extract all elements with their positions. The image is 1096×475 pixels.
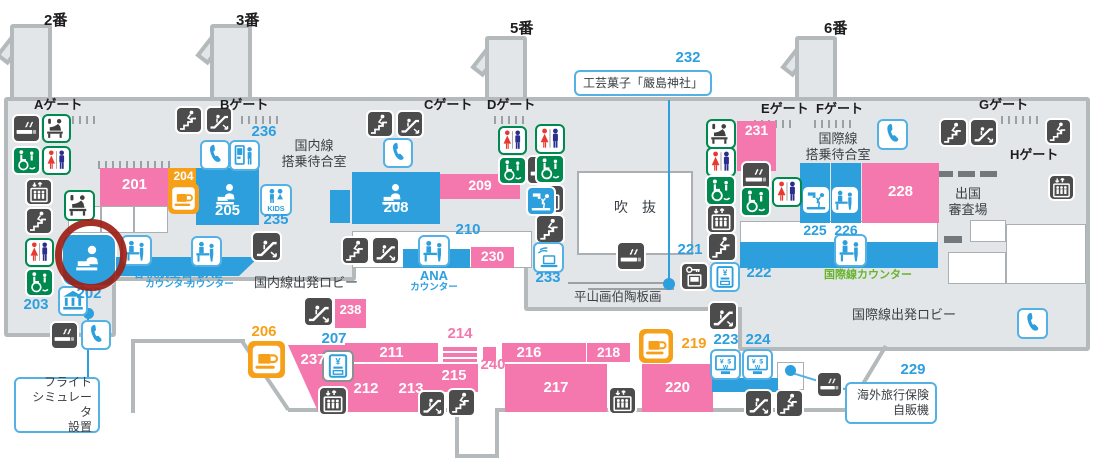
num-label: 225 [798, 222, 832, 239]
smoking-icon[interactable] [12, 114, 41, 143]
svg-text:W: W [755, 365, 761, 371]
accessible-toilet-icon[interactable] [740, 186, 771, 217]
coffee-shop-icon[interactable] [639, 329, 673, 363]
escalator-icon[interactable] [744, 389, 773, 418]
elevator-icon[interactable] [25, 178, 53, 206]
elevator-icon[interactable] [608, 386, 637, 415]
gate-door-marks [494, 116, 524, 124]
booth-dash [958, 171, 975, 177]
escalator-icon[interactable] [251, 231, 282, 262]
stairs-icon[interactable] [25, 207, 53, 235]
elevator-icon[interactable] [1048, 174, 1075, 201]
white-room [1006, 224, 1086, 284]
connector-dot [785, 365, 796, 376]
smoking-icon[interactable] [50, 321, 79, 350]
stairs-icon[interactable] [1045, 118, 1072, 145]
bridge-label: 5番 [510, 20, 533, 38]
stairs-icon[interactable] [535, 214, 565, 244]
num-label: 206 [240, 323, 288, 341]
counter-label: カウンター [184, 279, 236, 290]
num-label: 210 [446, 221, 490, 239]
zone-num: 216 [502, 344, 556, 362]
zone-num: 205 [196, 202, 259, 220]
counter-label: 国際線カウンター [804, 269, 932, 282]
coffee-shop-icon[interactable] [248, 341, 285, 378]
zone-208b[interactable] [330, 190, 350, 223]
stairs-icon[interactable] [366, 110, 394, 138]
booth-dash [980, 171, 997, 177]
toilet-icon[interactable] [706, 147, 736, 177]
toilet-icon[interactable] [535, 124, 565, 154]
zone-num: 237 [288, 351, 338, 369]
phone-icon[interactable] [200, 140, 230, 170]
area-label: 出国 審査場 [936, 186, 1000, 217]
phone-icon[interactable] [383, 138, 413, 168]
stairs-icon[interactable] [175, 106, 203, 134]
stairs-icon[interactable] [775, 389, 804, 418]
zone-num: 238 [335, 302, 366, 318]
white-room [948, 252, 1006, 284]
area-label: 国際線出発ロビー [852, 307, 956, 323]
area-label: 国内線 搭乗待合室 [260, 138, 368, 169]
escalator-icon[interactable] [371, 236, 400, 265]
zone-num: 204 [168, 169, 199, 183]
counter-label: カウンター [402, 282, 466, 293]
highlight-circle-202 [55, 219, 127, 291]
zone-num: 209 [440, 177, 520, 194]
booth-dash [944, 236, 962, 243]
gate-label: Hゲート [1010, 147, 1058, 163]
zone-num: 208 [352, 199, 440, 217]
wall-segment [495, 408, 499, 458]
airline-counter-icon[interactable] [834, 234, 867, 267]
elevator-icon[interactable] [706, 204, 736, 234]
currency-exchange-icon[interactable]: ¥$W [710, 349, 741, 380]
stairs-icon[interactable] [447, 388, 476, 417]
white-room [134, 206, 168, 233]
elevator-icon[interactable] [318, 386, 348, 416]
num-label: 221 [668, 241, 712, 259]
vending-machine-icon[interactable] [229, 140, 260, 171]
airline-counter-icon[interactable] [191, 236, 222, 267]
coin-locker-icon[interactable] [680, 262, 709, 291]
num-label: 232 [666, 49, 710, 67]
num-label: 214 [436, 325, 484, 343]
num-label: 226 [829, 222, 863, 239]
stairs-icon[interactable] [939, 118, 968, 147]
zone-num: 213 [389, 380, 433, 398]
gate-label: Bゲート [220, 97, 268, 113]
smoking-icon[interactable] [616, 241, 646, 271]
num-label: 222 [737, 264, 781, 282]
num-label: 233 [526, 269, 570, 287]
airport-floor-map: KIDS¥¥¥$W¥$W2番3番5番6番AゲートBゲートCゲートDゲートEゲート… [0, 0, 1096, 475]
zone-num: 217 [505, 379, 607, 397]
svg-text:W: W [723, 365, 729, 371]
accessible-toilet-icon[interactable] [535, 154, 565, 184]
zone-num: 231 [737, 122, 776, 139]
callout-travel-insurance: 海外旅行保険 自販機 [845, 382, 937, 424]
zone-num: 212 [345, 380, 387, 398]
gate-label: Dゲート [487, 97, 535, 113]
accessible-toilet-icon[interactable] [705, 175, 736, 206]
phone-icon[interactable] [81, 320, 111, 350]
currency-exchange-icon[interactable]: ¥$W [742, 349, 773, 380]
info-counter-icon[interactable] [832, 187, 858, 213]
gate-label: Gゲート [979, 97, 1028, 113]
gate-door-marks [1001, 116, 1041, 124]
zone-num: 230 [471, 248, 514, 265]
phone-icon[interactable] [1017, 308, 1048, 339]
bridge-label: 3番 [236, 12, 259, 30]
num-label: 235 [254, 211, 298, 229]
coffee-shop-icon[interactable] [168, 183, 199, 214]
area-label: 国内線出発ロビー [254, 275, 358, 291]
num-label: 203 [14, 296, 58, 314]
baby-room-icon[interactable] [706, 119, 736, 149]
escalator-icon[interactable] [969, 118, 998, 147]
gate-label: Cゲート [424, 97, 472, 113]
gate-door-marks [814, 120, 854, 128]
accessible-toilet-icon[interactable] [12, 146, 41, 175]
water-fountain-icon[interactable] [803, 187, 829, 213]
wall-segment [131, 339, 135, 413]
num-label: 236 [242, 123, 286, 141]
toilet-icon[interactable] [42, 146, 71, 175]
wall-segment [131, 339, 245, 343]
zone-num: 215 [430, 367, 478, 385]
baby-room-icon[interactable] [64, 190, 95, 221]
bridge-label: 6番 [824, 20, 847, 38]
area-label: 吹 抜 [577, 199, 693, 216]
callout-craft-sweets: 工芸菓子「嚴島神社」 [574, 70, 712, 96]
escalator-icon[interactable] [303, 296, 334, 327]
airline-counter-icon[interactable] [418, 235, 450, 267]
escalator-icon[interactable] [708, 301, 738, 331]
gate-label: Aゲート [34, 97, 82, 113]
atm-icon[interactable]: ¥ [710, 262, 740, 292]
area-label: 平山画伯陶板画 [574, 290, 662, 305]
smoking-icon[interactable] [816, 371, 843, 398]
callout-flight-simulator: フライト シミュレータ 設置 [14, 377, 100, 433]
accessible-toilet-icon[interactable] [25, 268, 54, 297]
toilet-icon[interactable] [498, 126, 527, 155]
zone-num: 228 [862, 183, 939, 201]
zone-num: 211 [345, 344, 438, 362]
toilet-icon[interactable] [772, 177, 802, 207]
escalator-icon[interactable] [396, 110, 424, 138]
num-label: 219 [670, 335, 718, 353]
svg-text:¥: ¥ [723, 267, 728, 277]
num-label: 224 [736, 331, 780, 349]
num-label: 229 [891, 361, 935, 379]
baby-room-icon[interactable] [42, 114, 71, 143]
connector-dot [663, 278, 675, 290]
zone-num: 220 [642, 379, 713, 397]
gate-label: Eゲート [761, 101, 809, 117]
area-label: 国際線 搭乗待合室 [783, 131, 893, 162]
toilet-icon[interactable] [25, 238, 54, 267]
stairs-icon[interactable] [341, 236, 370, 265]
bridge-label: 2番 [44, 12, 67, 30]
connector-line [568, 282, 664, 284]
white-room [970, 220, 1006, 242]
zone-num: 201 [100, 176, 169, 194]
wall-segment [455, 454, 499, 458]
zone-num: 218 [587, 344, 630, 361]
gate-label: Fゲート [816, 101, 863, 117]
water-fountain-icon[interactable] [526, 186, 556, 216]
